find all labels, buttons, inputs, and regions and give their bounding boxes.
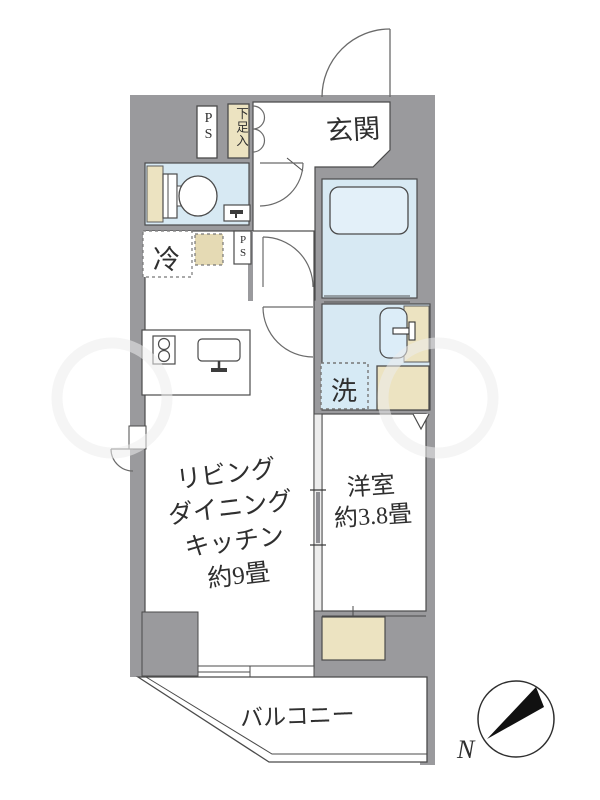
entrance-label: 玄関 [325,107,381,149]
shoe-storage-label: 下足入 [232,107,251,148]
balcony-label: バルコニー [239,695,355,733]
bottom-left-wall-block [142,612,198,676]
laundry-label: 洗 [331,371,357,408]
refrigerator-label: 冷 [153,238,180,277]
ldk-label: リビング ダイニング キッチン 約9畳 [142,448,322,603]
bathtub-icon [330,187,408,234]
floor-plan-drawing [0,0,600,800]
dashed-storage-box [195,234,223,265]
western-room-label: 洋室 約3.8畳 [314,468,430,536]
western-room-storage-box [322,617,385,660]
entrance-door-arc [322,29,390,97]
toilet-icon [163,174,217,218]
toilet-counter [147,166,163,222]
compass-north-label: N [457,735,474,765]
pipe-space-top-label: PS [200,111,216,143]
hand-basin-icon [224,205,250,221]
floor-plan-page: { "floor_plan": { "entrance": { "label":… [0,0,600,800]
toilet-room [145,163,250,225]
bathroom [322,179,417,302]
compass [478,681,554,757]
pipe-space-mid-label: PS [237,234,249,260]
